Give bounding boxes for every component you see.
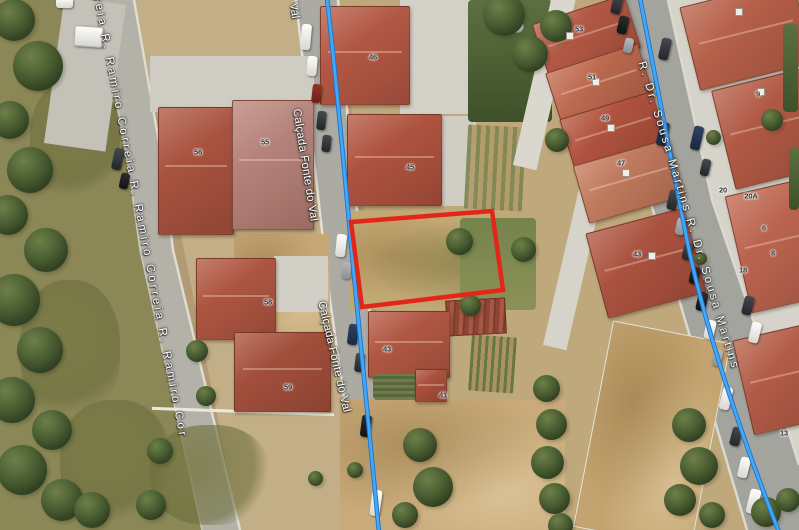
house-number-18: 18 (739, 266, 747, 275)
tree (460, 295, 481, 316)
tree (706, 130, 721, 145)
house-number-46: 46 (369, 53, 377, 62)
chimney (735, 8, 743, 16)
house-roof-43 (368, 311, 450, 378)
tree (74, 492, 110, 528)
tree (413, 467, 453, 507)
tree (347, 462, 363, 478)
house-number-56: 56 (194, 148, 202, 157)
chimney (648, 252, 656, 260)
car (56, 0, 73, 8)
house-roof-46 (320, 6, 410, 105)
tree (17, 327, 63, 373)
tree (403, 428, 437, 462)
house-number-43: 43 (383, 345, 391, 354)
tree (147, 438, 173, 464)
tree (196, 386, 216, 406)
house-roof-59 (234, 332, 331, 412)
tree (186, 340, 208, 362)
house-number-45: 45 (406, 163, 414, 172)
car (321, 135, 332, 153)
house-number-53: 53 (575, 25, 583, 34)
tree (392, 502, 418, 528)
tree (680, 447, 718, 485)
house-number-47: 47 (617, 159, 625, 168)
house-number-59: 59 (284, 383, 292, 392)
tree (536, 409, 567, 440)
tree (512, 36, 548, 72)
tree (511, 237, 536, 262)
patio-concrete (400, 0, 470, 114)
tree (699, 502, 725, 528)
tree (13, 41, 63, 91)
tree (24, 228, 68, 272)
tree (308, 471, 323, 486)
tree (776, 488, 799, 512)
house-number-55: 55 (261, 138, 269, 147)
tree (32, 410, 72, 450)
house-number-6: 6 (762, 224, 766, 233)
garden-hedge (783, 24, 798, 112)
house-number-9: 9 (756, 90, 760, 99)
house-number-20: 20 (719, 186, 727, 195)
tree (672, 408, 706, 442)
house-number-13: 13 (780, 429, 788, 438)
chimney (622, 169, 630, 177)
garden-hedge (789, 148, 799, 210)
house-number-51: 51 (588, 73, 596, 82)
house-number-20a: 20A (744, 192, 757, 201)
house-roof-45 (347, 114, 442, 206)
house-number-41: 41 (439, 391, 447, 400)
tree (664, 484, 696, 516)
green-annex-roof (373, 374, 417, 400)
tree (539, 483, 570, 514)
house-number-43-right: 43 (633, 250, 641, 259)
car (306, 56, 318, 77)
car (341, 262, 352, 280)
tree (533, 375, 560, 402)
tree (136, 490, 166, 520)
garden-rows (464, 125, 526, 212)
house-roof-56 (158, 107, 234, 235)
tree (446, 228, 473, 255)
street-label-calcada-top: Val (287, 2, 301, 19)
tree (761, 109, 783, 131)
chimney (566, 32, 574, 40)
satellite-map-canvas[interactable]: reia R. Ramiro Correia R. Ramiro Correia… (0, 0, 799, 530)
garden-rows (468, 334, 517, 393)
tree (545, 128, 569, 152)
house-number-58: 58 (264, 298, 272, 307)
chimney (607, 124, 615, 132)
tree (7, 147, 53, 193)
tree (531, 446, 564, 479)
house-number-49: 49 (601, 114, 609, 123)
house-number-8: 8 (771, 249, 775, 258)
